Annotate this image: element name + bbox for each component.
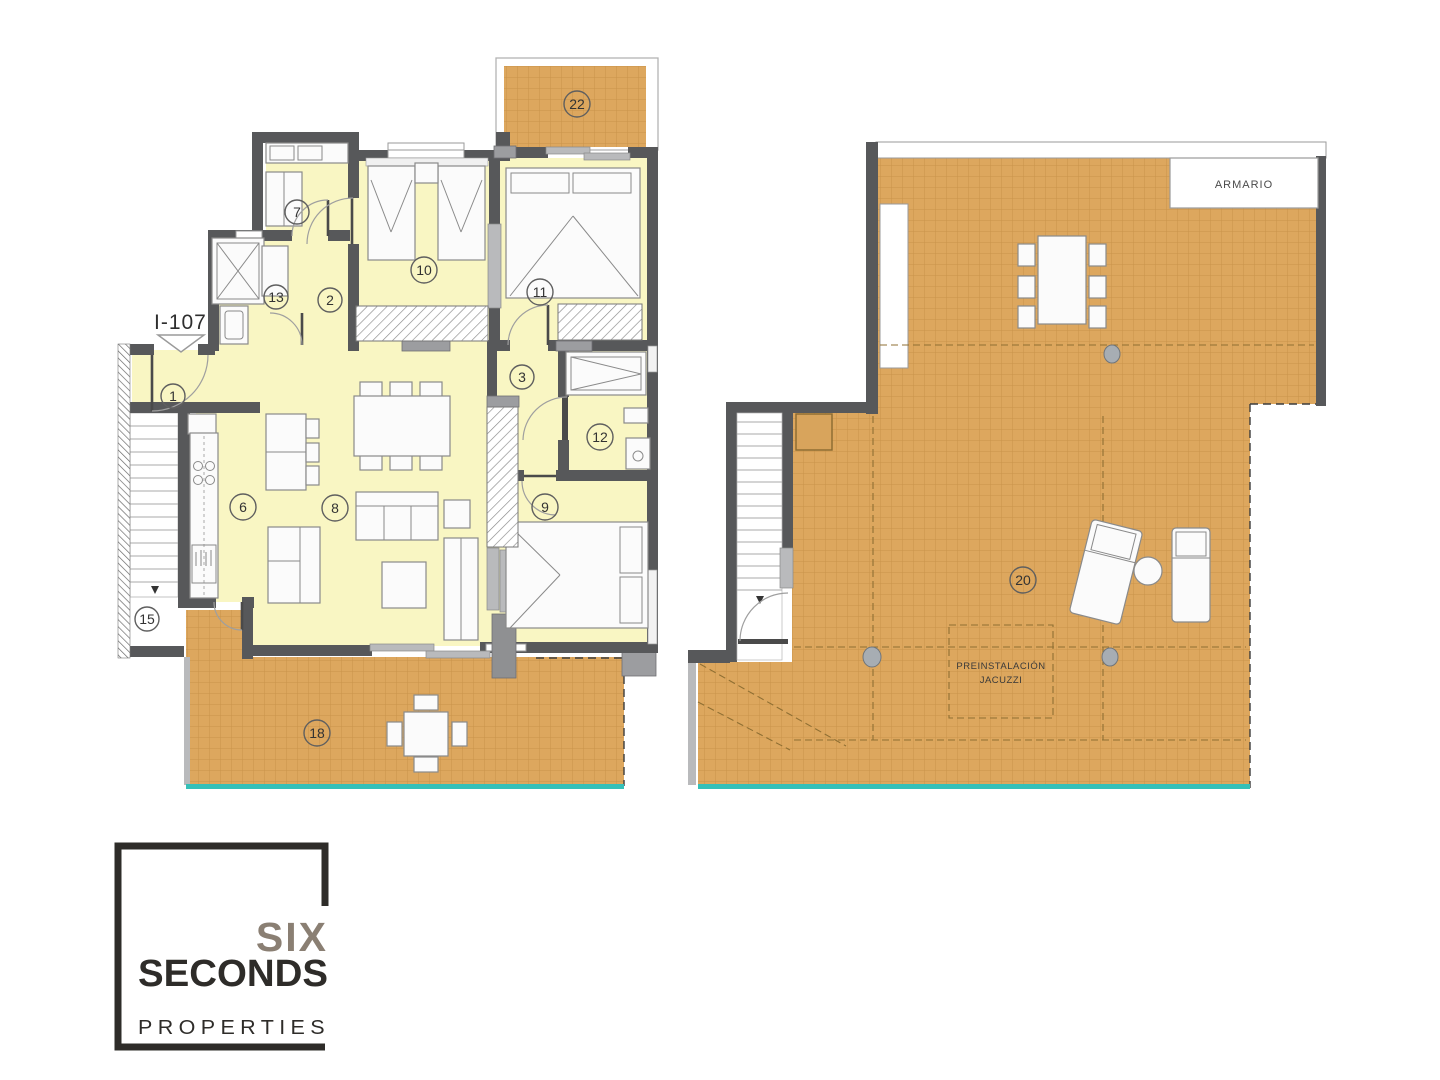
entrance-arrow-icon bbox=[158, 335, 204, 352]
room-label-13: 13 bbox=[268, 289, 284, 305]
room-label-22: 22 bbox=[569, 96, 585, 112]
stairs-15 bbox=[130, 413, 178, 597]
room-label-12: 12 bbox=[592, 429, 608, 445]
room-label-10: 10 bbox=[416, 262, 432, 278]
room-label-11: 11 bbox=[533, 284, 548, 300]
six-seconds-logo: SIX SECONDS PROPERTIES bbox=[118, 846, 330, 1047]
unit-label-text: I-107 bbox=[154, 311, 207, 334]
room-label-2: 2 bbox=[326, 292, 334, 308]
floorplan-page: I-107 22 7 13 2 10 11 3 1 12 6 8 9 15 18 bbox=[0, 0, 1440, 1080]
sun-lounger-2 bbox=[1172, 528, 1210, 622]
room-label-8: 8 bbox=[331, 500, 339, 516]
side-table-round bbox=[1134, 557, 1162, 585]
dining-table bbox=[1038, 236, 1086, 324]
terrace-left-edge bbox=[184, 657, 190, 785]
stair-door-leaf bbox=[738, 639, 788, 644]
room-label-1: 1 bbox=[169, 388, 177, 404]
armario-label: ARMARIO bbox=[1215, 179, 1273, 191]
room-label-6: 6 bbox=[239, 499, 247, 515]
room-label-15: 15 bbox=[139, 611, 155, 627]
plan-left-apartment: I-107 22 7 13 2 10 11 3 1 12 6 8 9 15 18 bbox=[118, 58, 658, 789]
party-wall-hatch-pattern bbox=[118, 344, 130, 658]
room-label-7: 7 bbox=[293, 204, 301, 220]
jacuzzi-label-line1: PREINSTALACIÓN bbox=[956, 661, 1045, 672]
room-label-9: 9 bbox=[541, 499, 549, 515]
floorplan-drawing: I-107 22 7 13 2 10 11 3 1 12 6 8 9 15 18 bbox=[0, 0, 1440, 1080]
pool-edge-line-right bbox=[698, 784, 1250, 789]
logo-word-properties: PROPERTIES bbox=[138, 1017, 330, 1039]
jacuzzi-label-line2: JACUZZI bbox=[980, 675, 1023, 686]
plan-right-solarium: ARMARIO bbox=[688, 142, 1326, 789]
armario-closet: ARMARIO bbox=[1170, 158, 1318, 208]
skylight-strip bbox=[880, 204, 908, 368]
room-label-18: 18 bbox=[309, 725, 325, 741]
terrace-pillar bbox=[622, 650, 656, 676]
room-label-20: 20 bbox=[1015, 572, 1031, 588]
logo-word-seconds: SECONDS bbox=[138, 953, 328, 995]
pool-edge-line bbox=[186, 784, 624, 789]
shower-tray bbox=[796, 414, 832, 450]
room-label-3: 3 bbox=[518, 369, 526, 385]
parapet-band bbox=[876, 142, 1326, 158]
solarium-left-edge bbox=[688, 663, 696, 785]
